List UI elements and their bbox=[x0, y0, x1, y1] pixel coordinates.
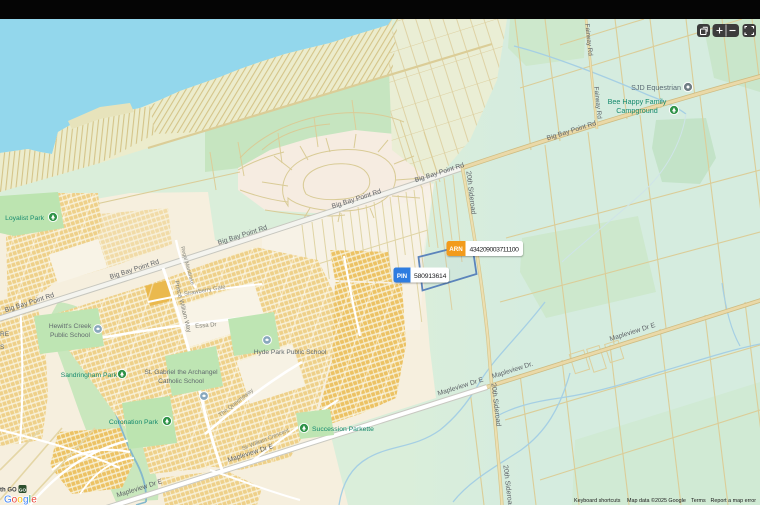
svg-text:RE: RE bbox=[0, 331, 10, 338]
svg-text:Succession Parkette: Succession Parkette bbox=[312, 426, 374, 433]
svg-text:Sandringham Park: Sandringham Park bbox=[61, 372, 118, 379]
svg-text:434209003711100: 434209003711100 bbox=[470, 246, 520, 253]
svg-text:St. Gabriel the Archangel: St. Gabriel the Archangel bbox=[144, 369, 218, 376]
svg-text:g: g bbox=[23, 495, 29, 505]
svg-text:S: S bbox=[0, 344, 5, 351]
svg-text:Terms: Terms bbox=[691, 498, 706, 504]
svg-text:PIN: PIN bbox=[397, 273, 408, 280]
svg-text:Hyde Park Public School: Hyde Park Public School bbox=[254, 349, 327, 356]
svg-text:GO: GO bbox=[19, 487, 27, 492]
svg-text:580913614: 580913614 bbox=[414, 273, 447, 280]
svg-text:th GO: th GO bbox=[0, 488, 17, 494]
svg-text:Hewitt's Creek: Hewitt's Creek bbox=[49, 323, 92, 330]
svg-text:Keyboard shortcuts: Keyboard shortcuts bbox=[574, 498, 621, 504]
svg-text:SJD Equestrian: SJD Equestrian bbox=[631, 83, 681, 92]
svg-text:Campground: Campground bbox=[616, 106, 658, 115]
svg-text:Coronation Park: Coronation Park bbox=[109, 419, 159, 426]
svg-text:ARN: ARN bbox=[449, 246, 463, 253]
svg-text:Public School: Public School bbox=[50, 332, 90, 339]
svg-text:Bee Happy Family: Bee Happy Family bbox=[608, 97, 667, 106]
svg-text:Map data ©2025 Google: Map data ©2025 Google bbox=[627, 497, 686, 504]
svg-text:Catholic School: Catholic School bbox=[158, 378, 204, 385]
svg-text:e: e bbox=[31, 495, 37, 505]
svg-text:Loyalist Park: Loyalist Park bbox=[5, 215, 45, 222]
svg-text:Report a map error: Report a map error bbox=[710, 498, 756, 504]
